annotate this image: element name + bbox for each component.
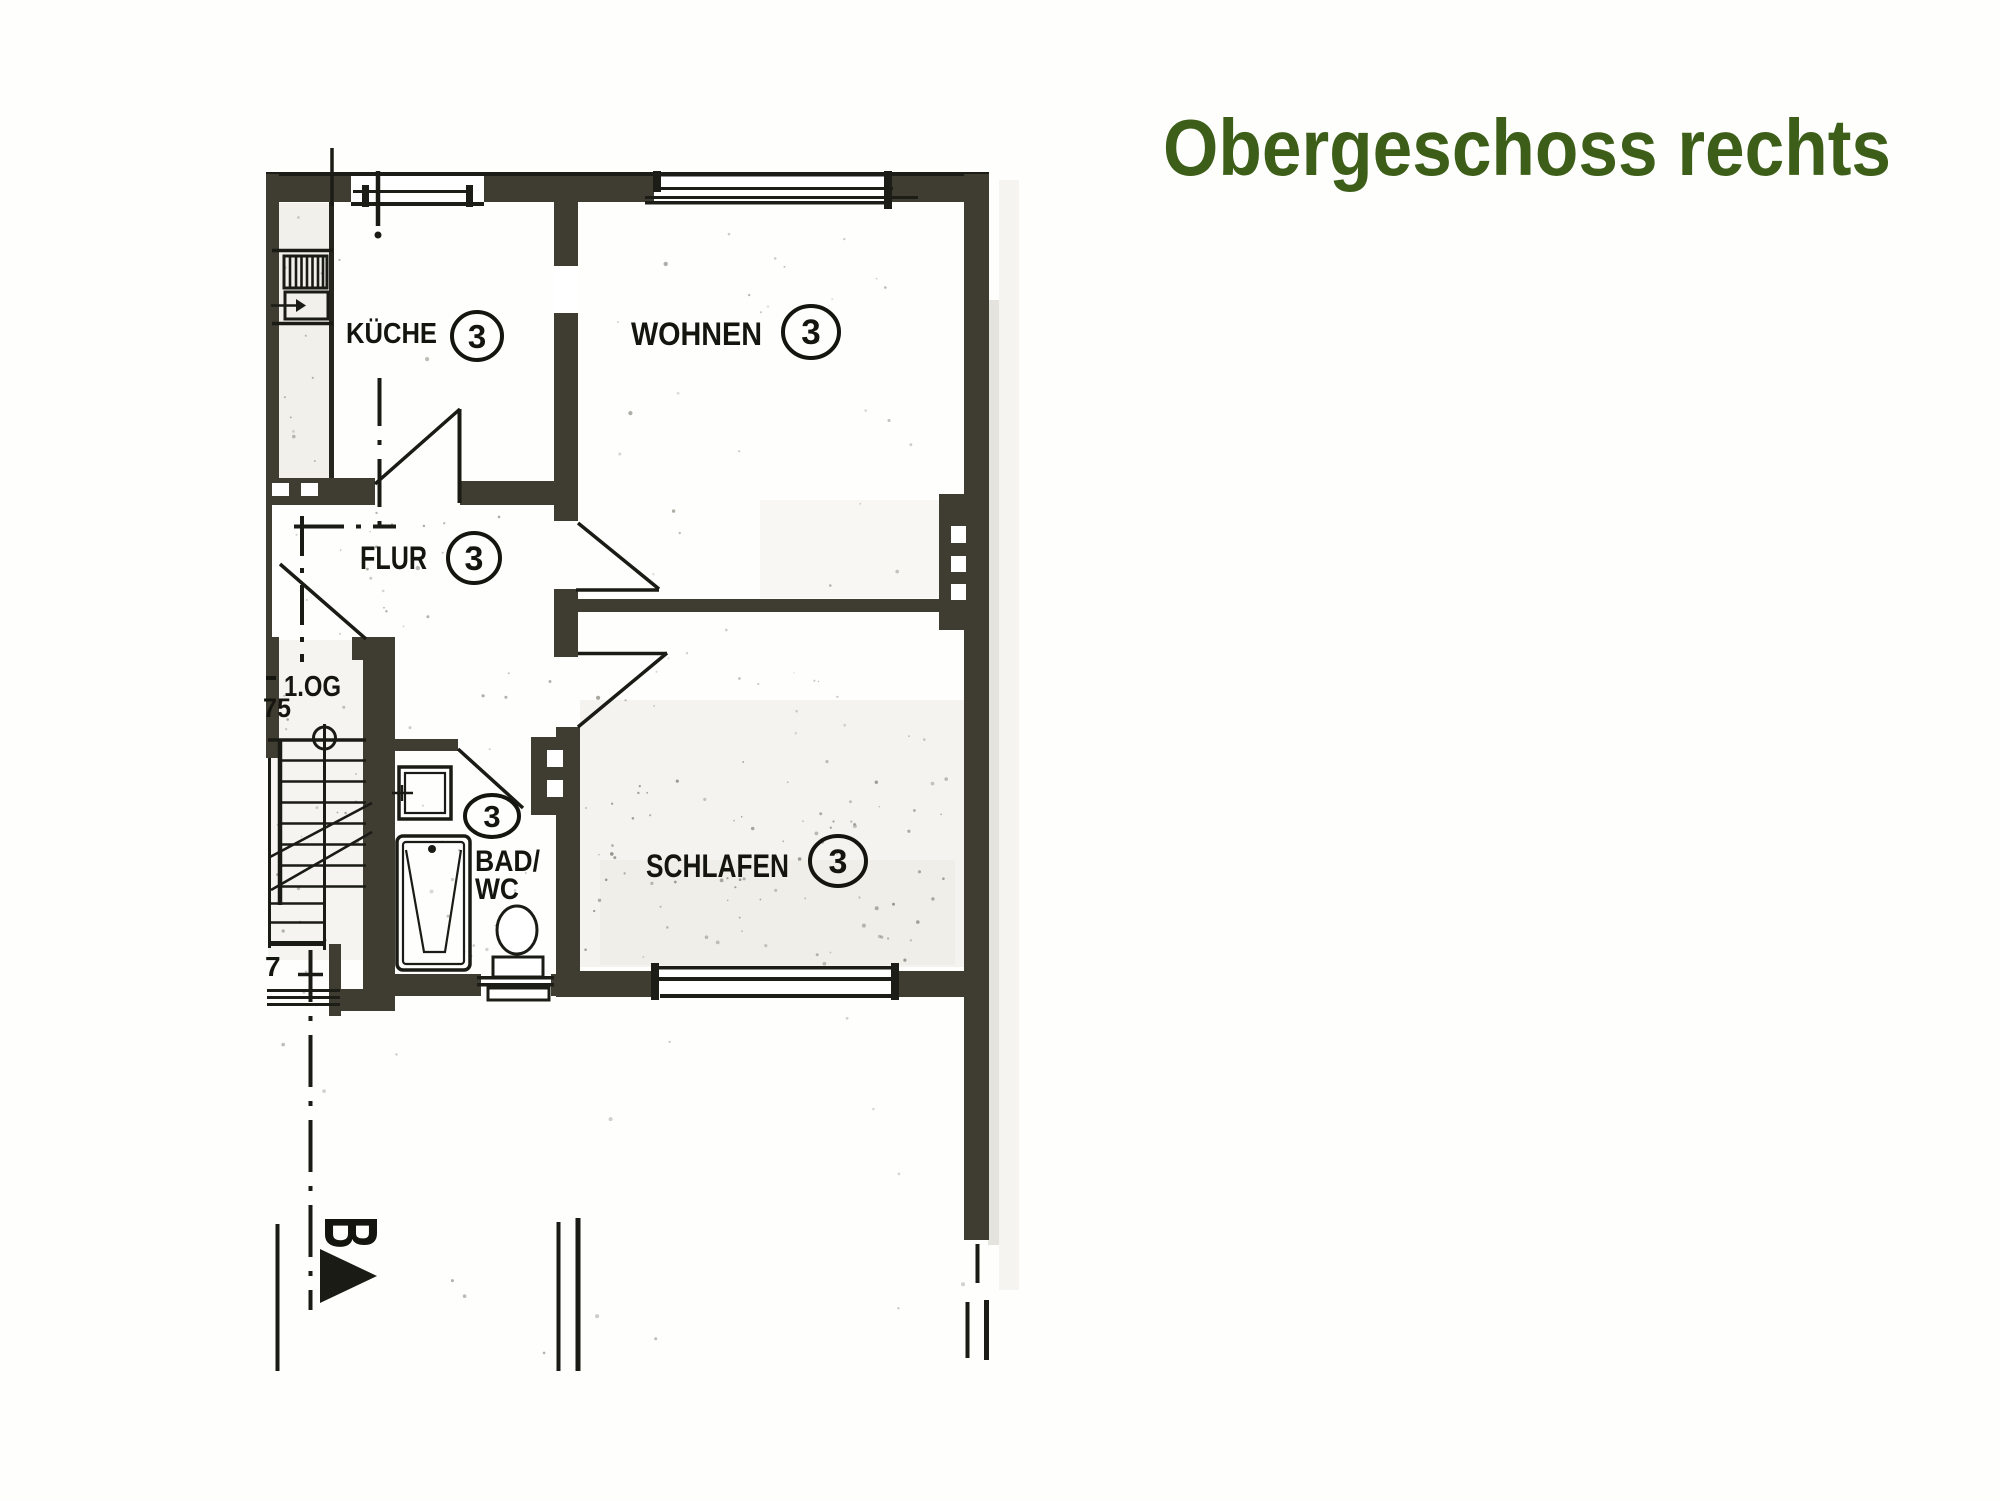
svg-text:KÜCHE: KÜCHE: [346, 317, 437, 350]
svg-text:1.OG: 1.OG: [284, 671, 341, 703]
svg-text:3: 3: [468, 318, 486, 355]
svg-text:WOHNEN: WOHNEN: [631, 316, 762, 352]
svg-text:SCHLAFEN: SCHLAFEN: [646, 848, 789, 884]
svg-text:3: 3: [483, 799, 500, 834]
svg-text:B: B: [308, 1216, 391, 1249]
svg-text:3: 3: [829, 843, 848, 881]
svg-text:WC: WC: [475, 873, 519, 906]
svg-text:3: 3: [801, 313, 820, 352]
svg-text:FLUR: FLUR: [360, 540, 427, 576]
svg-text:7: 7: [265, 951, 281, 982]
svg-text:Obergeschoss rechts: Obergeschoss rechts: [1163, 103, 1891, 192]
svg-text:3: 3: [465, 540, 484, 578]
svg-text:75: 75: [263, 693, 291, 723]
